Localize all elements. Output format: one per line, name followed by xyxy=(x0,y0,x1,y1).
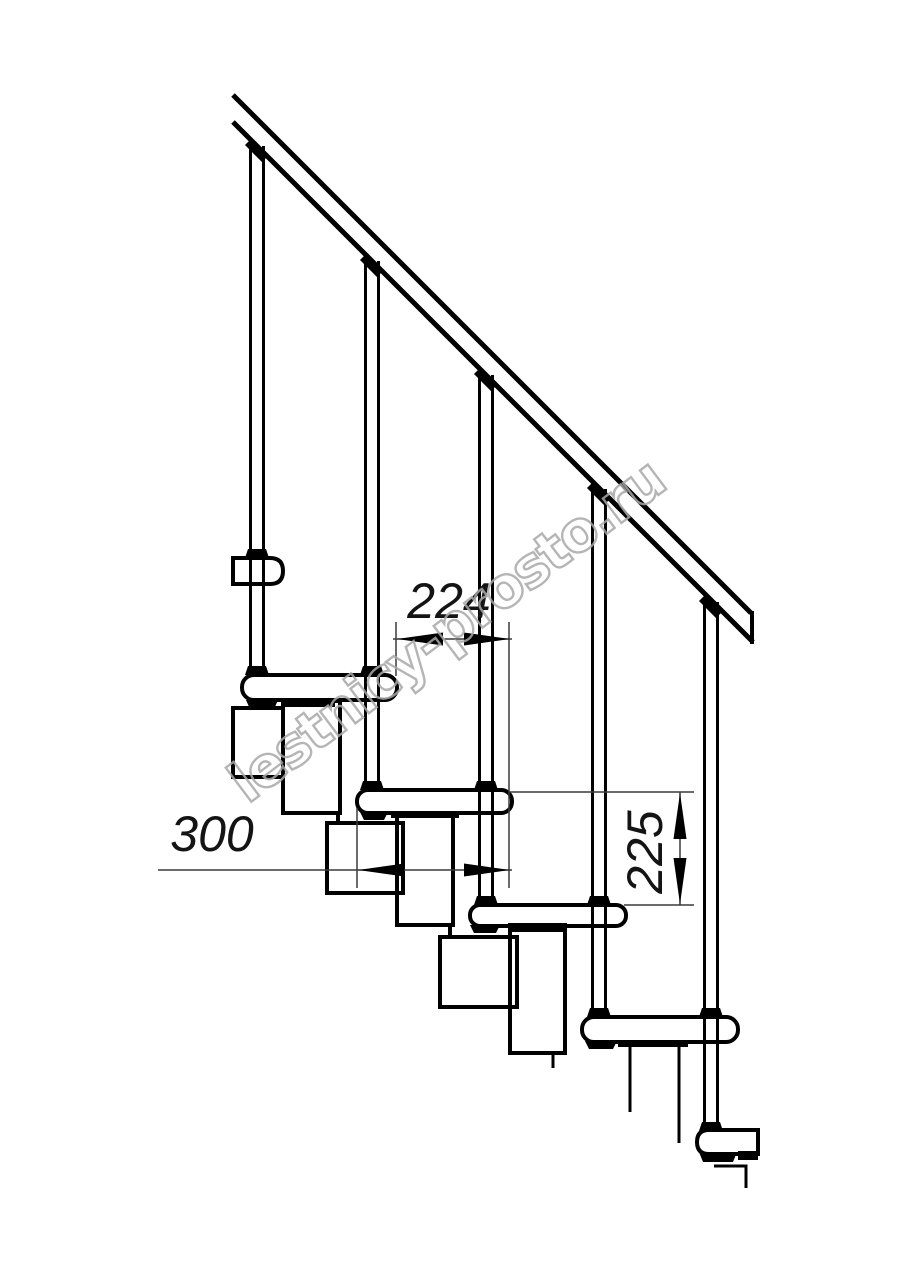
baluster-column-1 xyxy=(245,138,269,675)
dimension-depth-label: 300 xyxy=(170,806,254,862)
module-box xyxy=(327,823,403,893)
tread-mount-bar xyxy=(618,1041,688,1047)
tread-mount-foot xyxy=(585,1041,617,1049)
tread-mount-foot xyxy=(360,812,388,820)
module-box xyxy=(440,937,517,1007)
arrowhead-right xyxy=(464,864,510,877)
dimension-rise-label: 225 xyxy=(617,810,673,895)
rail-connector xyxy=(360,253,384,277)
floor-cut-line xyxy=(714,1166,746,1188)
dimension-depth: 300 xyxy=(158,806,512,888)
plate-bar xyxy=(738,1151,758,1160)
arrowhead-down xyxy=(674,858,687,904)
baluster-column-5 xyxy=(699,594,723,1131)
arrowhead-left xyxy=(358,864,404,877)
tread-4 xyxy=(582,1017,738,1049)
floor-mount-plate xyxy=(697,1130,758,1188)
drawing-canvas: 224 300 225 lestnicy-prosto.ru xyxy=(0,0,914,1280)
upper-landing-bracket xyxy=(233,558,283,584)
rail-connector xyxy=(474,367,498,391)
staircase-drawing: 224 300 225 lestnicy-prosto.ru xyxy=(0,0,914,1280)
watermark-text: lestnicy-prosto.ru xyxy=(217,447,677,816)
rail-connector xyxy=(245,138,269,162)
tread-mount-foot xyxy=(470,925,500,933)
plate-foot xyxy=(699,1152,737,1162)
arrowhead-up xyxy=(674,793,687,839)
dimension-rise: 225 xyxy=(510,792,694,905)
tread-3 xyxy=(470,905,626,933)
